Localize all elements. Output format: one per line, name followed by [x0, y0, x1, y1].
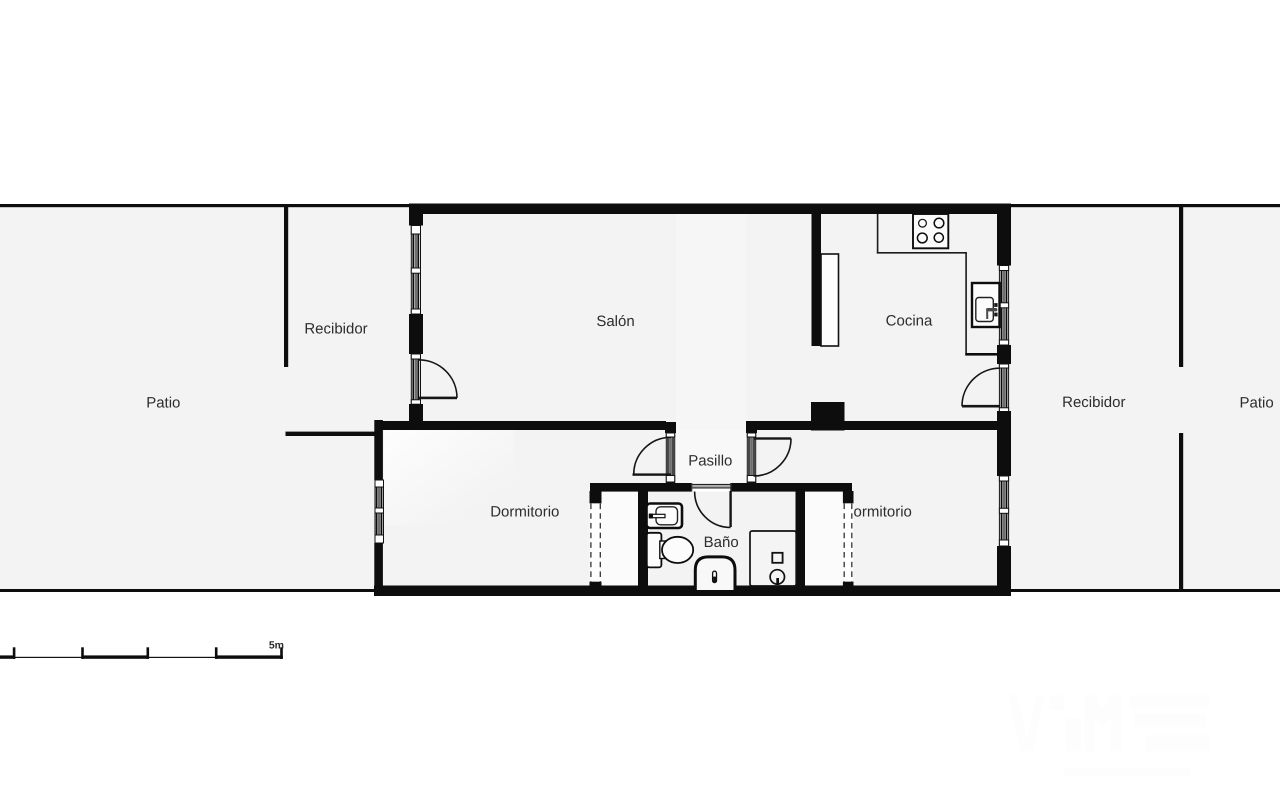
svg-text:Baño: Baño — [704, 534, 739, 551]
svg-text:Recibidor: Recibidor — [1062, 394, 1125, 411]
svg-text:Salón: Salón — [596, 313, 634, 330]
svg-text:Patio: Patio — [146, 395, 180, 412]
svg-text:Dormitorio: Dormitorio — [490, 504, 559, 521]
svg-text:Patio: Patio — [1239, 395, 1273, 412]
svg-text:Pasillo: Pasillo — [688, 452, 732, 469]
svg-text:Cocina: Cocina — [886, 312, 933, 329]
svg-text:Recibidor: Recibidor — [304, 321, 367, 338]
svg-text:5m: 5m — [269, 640, 284, 652]
